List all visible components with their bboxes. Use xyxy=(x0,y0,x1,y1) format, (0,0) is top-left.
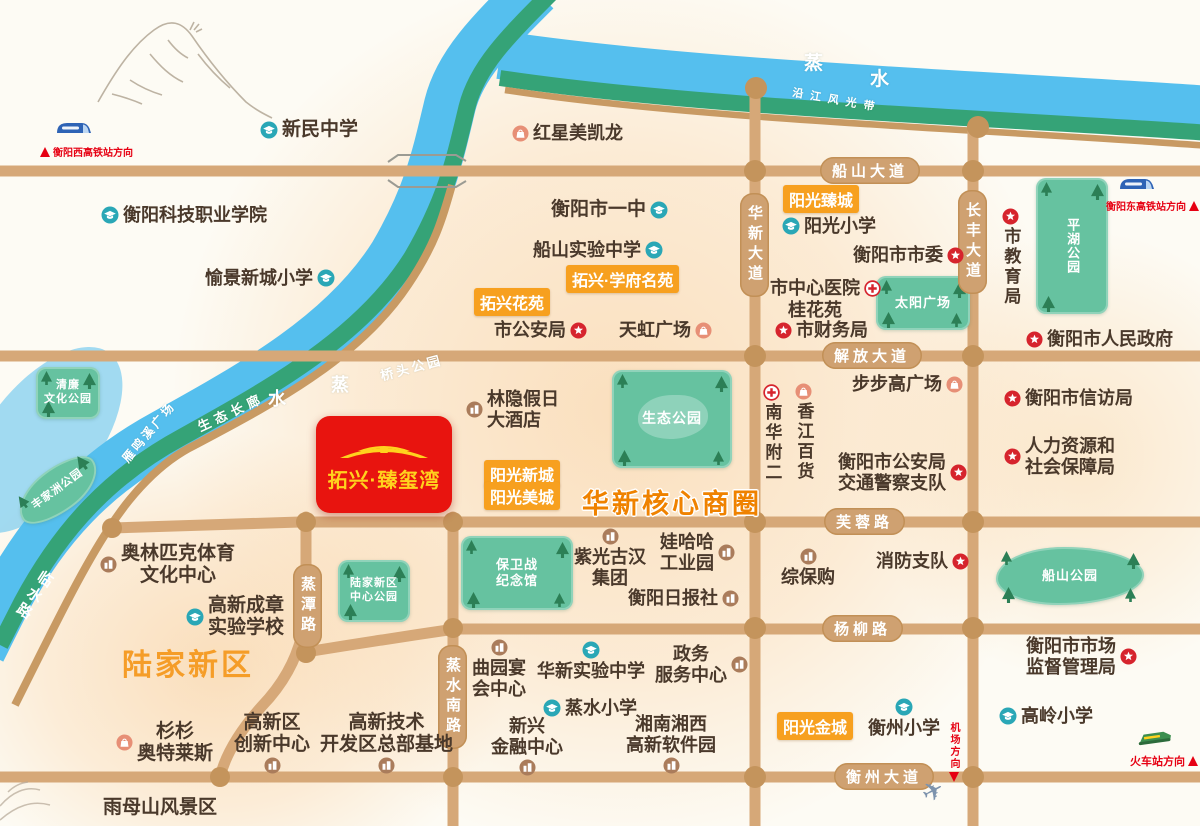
gov-icon xyxy=(1004,448,1021,465)
poi-text-line: 开发区总部基地 xyxy=(320,734,453,756)
poi-text-line: 衡阳科技职业学院 xyxy=(123,205,267,226)
poi-text: 船山实验中学 xyxy=(533,240,641,261)
poi-text: 政务服务中心 xyxy=(655,644,727,685)
project-badge: 阳光臻城 xyxy=(783,185,859,213)
poi-text-line: 船山实验中学 xyxy=(533,240,641,261)
poi-gov: 消防支队 xyxy=(876,551,969,572)
tree-icon xyxy=(466,540,477,554)
river-label: 雁鸣溪广场 xyxy=(118,398,179,466)
poi-text-line: 高岭小学 xyxy=(1021,706,1093,727)
poi-building: 新兴金融中心 xyxy=(491,716,563,776)
poi-text: 桂花苑 xyxy=(788,300,842,321)
poi-text: 市公安局 xyxy=(494,320,566,341)
gov-icon xyxy=(1120,648,1137,665)
poi-school: 衡阳市一中 xyxy=(551,199,668,221)
river-label: 水 xyxy=(268,385,286,411)
road-label: 解放大道 xyxy=(822,342,922,369)
poi-text: 湘南湘西高新软件园 xyxy=(626,714,716,755)
tree-icon xyxy=(1125,588,1136,602)
river-label: 沿江风光带 xyxy=(791,84,882,115)
tree-icon xyxy=(1002,587,1015,603)
park-name-line: 生态公园 xyxy=(642,410,702,428)
park-name-line: 保卫战 xyxy=(496,557,538,573)
poi-school: 衡阳科技职业学院 xyxy=(101,205,267,226)
poi-text: 衡阳市人民政府 xyxy=(1047,329,1173,350)
gov-icon xyxy=(1026,331,1043,348)
poi-text: 南华附二 xyxy=(762,403,781,483)
direction-marker: 衡阳西高铁站方向 xyxy=(40,144,133,159)
poi-text-line: 实验学校 xyxy=(208,617,284,639)
poi-text-line: 南华附二 xyxy=(762,403,781,483)
river-label: 生态长廊 xyxy=(194,388,267,436)
direction-text: 衡阳东高铁站方向 xyxy=(1106,198,1186,213)
tree-icon xyxy=(344,604,357,620)
poi-text: 综保购 xyxy=(781,567,835,588)
poi-text-line: 工业园 xyxy=(660,553,714,574)
poi-text: 新民中学 xyxy=(282,119,358,141)
train-green-icon xyxy=(1136,727,1174,746)
logo-roof-icon xyxy=(334,437,434,461)
building-icon xyxy=(519,759,536,776)
park-name-line: 中心公园 xyxy=(350,591,398,605)
poi-building: 高新区创新中心 xyxy=(234,712,310,774)
poi-text-line: 高新软件园 xyxy=(626,735,716,756)
road-label: 蒸潭路 xyxy=(293,564,322,648)
poi-text: 阳光小学 xyxy=(804,216,876,237)
poi-text-line: 衡阳市市场 xyxy=(1026,636,1116,657)
poi-text-line: 紫光古汉 xyxy=(574,547,646,568)
park-block: 陆家新区中心公园 xyxy=(338,560,410,622)
school-icon xyxy=(582,641,600,659)
park-name-line: 丰家洲公园 xyxy=(30,467,87,513)
park-name: 太阳广场 xyxy=(895,295,951,311)
tree-icon xyxy=(1091,184,1104,200)
poi-text: 市财务局 xyxy=(796,320,868,341)
poi-school: 新民中学 xyxy=(260,119,358,141)
road-label: 临水路 xyxy=(9,566,58,625)
tree-icon xyxy=(343,564,354,578)
park-name-line: 平湖公园 xyxy=(1064,218,1080,274)
poi-text: 愉景新城小学 xyxy=(205,268,313,289)
poi-text: 红星美凯龙 xyxy=(533,123,623,144)
poi-building: 综保购 xyxy=(781,548,835,588)
poi-text: 衡阳市市委 xyxy=(853,245,943,266)
poi-text-line: 政务 xyxy=(655,644,727,665)
poi-hospital: 市中心医院 xyxy=(770,278,881,299)
poi-text: 奥林匹克体育文化中心 xyxy=(121,543,235,586)
mall-icon xyxy=(695,322,712,339)
poi-text-line: 综保购 xyxy=(781,567,835,588)
poi-text-line: 衡州小学 xyxy=(868,718,940,739)
poi-building: 奥林匹克体育文化中心 xyxy=(100,543,235,586)
park-name: 生态公园 xyxy=(642,410,702,428)
river-label: 桥头公园 xyxy=(378,349,445,384)
poi-text-line: 市教育局 xyxy=(1001,227,1020,307)
poi-building: 政务服务中心 xyxy=(655,644,748,685)
poi-school: 高新成章实验学校 xyxy=(186,595,284,638)
poi-text-line: 奥特莱斯 xyxy=(137,743,213,765)
poi-gov: 人力资源和社会保障局 xyxy=(1004,436,1115,477)
direction-text: 火车站方向 xyxy=(1130,753,1185,769)
hospital-icon xyxy=(864,280,881,297)
school-icon xyxy=(999,707,1017,725)
poi-text-line: 红星美凯龙 xyxy=(533,123,623,144)
gov-icon xyxy=(1002,208,1019,225)
poi-building: 紫光古汉集团 xyxy=(574,528,646,588)
poi-text-line: 人力资源和 xyxy=(1025,436,1115,457)
direction-arrow-icon xyxy=(40,147,50,157)
poi-gov: 衡阳市市委 xyxy=(853,245,964,266)
tree-icon xyxy=(951,313,962,327)
direction-arrow-icon xyxy=(1189,201,1199,211)
area-name: 华新核心商圈 xyxy=(582,482,762,521)
gov-icon xyxy=(1004,390,1021,407)
park-block: 保卫战纪念馆 xyxy=(461,536,573,610)
poi-text-line: 曲园宴 xyxy=(472,658,526,679)
poi-building: 衡阳日报社 xyxy=(628,588,739,609)
school-icon xyxy=(260,121,278,139)
gov-icon xyxy=(952,553,969,570)
project-badge: 拓兴花苑 xyxy=(474,288,550,316)
poi-text-line: 文化中心 xyxy=(121,565,235,587)
tree-icon xyxy=(618,450,631,466)
poi-building: 娃哈哈工业园 xyxy=(660,532,735,573)
road-label: 华新大道 xyxy=(740,193,769,297)
poi-text-line: 高新区 xyxy=(234,712,310,734)
poi-text: 衡阳市公安局交通警察支队 xyxy=(838,452,946,493)
poi-text-line: 服务中心 xyxy=(655,665,727,686)
direction-marker: 机场方向 xyxy=(946,722,961,782)
poi-text: 杉杉奥特莱斯 xyxy=(137,721,213,764)
building-icon xyxy=(378,757,395,774)
park-name: 陆家新区中心公园 xyxy=(350,577,398,605)
project-logo-name: 拓兴·臻玺湾 xyxy=(328,464,441,493)
poi-text: 香江百货 xyxy=(794,402,813,482)
park-name: 平湖公园 xyxy=(1064,218,1080,274)
poi-text-line: 桂花苑 xyxy=(788,300,842,321)
school-icon xyxy=(543,699,561,717)
poi-text: 雨母山风景区 xyxy=(103,797,217,819)
poi-text-line: 监督管理局 xyxy=(1026,657,1116,678)
poi-text: 市教育局 xyxy=(1001,227,1020,307)
direction-marker: 火车站方向 xyxy=(1130,753,1198,769)
building-icon xyxy=(491,639,508,656)
poi-text-line: 雨母山风景区 xyxy=(103,797,217,819)
poi-text: 高新成章实验学校 xyxy=(208,595,284,638)
poi-gov: 市公安局 xyxy=(494,320,587,341)
poi-text: 衡阳科技职业学院 xyxy=(123,205,267,226)
school-icon xyxy=(101,206,119,224)
poi-text-line: 华新实验中学 xyxy=(537,661,645,682)
gov-icon xyxy=(570,322,587,339)
poi-building: 林隐假日大酒店 xyxy=(466,389,559,430)
direction-text: 机场方向 xyxy=(946,722,961,770)
poi-mall: 红星美凯龙 xyxy=(512,123,623,144)
park-name-line: 船山公园 xyxy=(1042,568,1098,584)
tree-icon xyxy=(713,451,724,465)
park-block: 丰家洲公园 xyxy=(8,445,108,535)
building-icon xyxy=(663,757,680,774)
poi-gov: 市教育局 xyxy=(1001,208,1020,307)
poi-text-line: 创新中心 xyxy=(234,734,310,756)
train-blue-icon xyxy=(55,119,93,136)
poi-text-line: 衡阳市信访局 xyxy=(1025,388,1133,409)
poi-text: 紫光古汉集团 xyxy=(574,547,646,588)
poi-text: 新兴金融中心 xyxy=(491,716,563,757)
park-name: 丰家洲公园 xyxy=(30,467,87,513)
tree-icon xyxy=(1127,553,1140,569)
poi-text-line: 金融中心 xyxy=(491,737,563,758)
poi-text: 高新区创新中心 xyxy=(234,712,310,755)
poi-text: 人力资源和社会保障局 xyxy=(1025,436,1115,477)
poi-text-line: 社会保障局 xyxy=(1025,457,1115,478)
poi-text-line: 会中心 xyxy=(472,679,526,700)
project-badge: 拓兴·学府名苑 xyxy=(566,265,679,293)
park-block: 清廉文化公园 xyxy=(36,367,100,419)
poi-mall: 步步高广场 xyxy=(852,374,963,395)
direction-arrow-icon xyxy=(949,772,959,782)
poi-gov: 市财务局 xyxy=(775,320,868,341)
mall-icon xyxy=(512,125,529,142)
poi-text: 衡阳市一中 xyxy=(551,199,646,221)
road-label: 船山大道 xyxy=(820,157,920,184)
mall-icon xyxy=(795,383,812,400)
direction-text: 衡阳西高铁站方向 xyxy=(53,144,133,159)
poi-text: 衡州小学 xyxy=(868,718,940,739)
poi-text-line: 娃哈哈 xyxy=(660,532,714,553)
park-block: 生态公园 xyxy=(612,370,732,468)
poi-text-line: 衡阳日报社 xyxy=(628,588,718,609)
poi-text-line: 步步高广场 xyxy=(852,374,942,395)
poi-text-line: 新民中学 xyxy=(282,119,358,141)
tree-icon xyxy=(1042,296,1055,312)
poi-text-line: 高新成章 xyxy=(208,595,284,617)
school-icon xyxy=(645,241,663,259)
poi-text: 林隐假日大酒店 xyxy=(487,389,559,430)
park-block: 太阳广场 xyxy=(876,276,970,330)
park-name-line: 太阳广场 xyxy=(895,295,951,311)
school-icon xyxy=(895,698,913,716)
park-name-line: 文化公园 xyxy=(44,393,92,407)
poi-text: 消防支队 xyxy=(876,551,948,572)
poi-mall: 天虹广场 xyxy=(619,320,712,341)
tree-icon xyxy=(617,374,628,388)
building-icon xyxy=(264,757,281,774)
river-label: 蒸 xyxy=(804,48,823,75)
tree-icon xyxy=(715,376,728,392)
poi-text-line: 香江百货 xyxy=(794,402,813,482)
mall-icon xyxy=(116,734,133,751)
park-block: 平湖公园 xyxy=(1036,178,1108,314)
train-blue-icon xyxy=(1118,175,1156,192)
poi-building: 湘南湘西高新软件园 xyxy=(626,714,716,774)
poi-text-line: 衡阳市市委 xyxy=(853,245,943,266)
poi-text-line: 高新技术 xyxy=(320,712,453,734)
poi-building: 高新技术开发区总部基地 xyxy=(320,712,453,774)
poi-text: 华新实验中学 xyxy=(537,661,645,682)
poi-text: 市中心医院 xyxy=(770,278,860,299)
poi-text-line: 阳光小学 xyxy=(804,216,876,237)
poi-text-line: 天虹广场 xyxy=(619,320,691,341)
tree-icon xyxy=(467,592,480,608)
school-icon xyxy=(650,201,668,219)
poi-text: 衡阳市市场监督管理局 xyxy=(1026,636,1116,677)
park-name: 清廉文化公园 xyxy=(44,379,92,407)
poi-school: 华新实验中学 xyxy=(537,641,645,682)
poi-text-line: 交通警察支队 xyxy=(838,473,946,494)
plane-icon: ✈ xyxy=(917,774,948,807)
poi-label: 雨母山风景区 xyxy=(103,797,217,819)
poi-text-line: 新兴 xyxy=(491,716,563,737)
poi-text: 天虹广场 xyxy=(619,320,691,341)
poi-text-line: 市财务局 xyxy=(796,320,868,341)
building-icon xyxy=(718,544,735,561)
poi-school: 高岭小学 xyxy=(999,706,1093,727)
poi-gov: 衡阳市人民政府 xyxy=(1026,329,1173,350)
poi-text: 曲园宴会中心 xyxy=(472,658,526,699)
park-name-line: 清廉 xyxy=(44,379,92,393)
poi-text-line: 集团 xyxy=(574,568,646,589)
poi-school: 船山实验中学 xyxy=(533,240,663,261)
poi-school: 愉景新城小学 xyxy=(205,268,335,289)
tree-icon xyxy=(1041,182,1052,196)
area-name: 陆家新区 xyxy=(122,640,254,684)
gov-icon xyxy=(775,322,792,339)
building-icon xyxy=(731,656,748,673)
hospital-icon xyxy=(763,384,780,401)
building-icon xyxy=(602,528,619,545)
poi-text: 步步高广场 xyxy=(852,374,942,395)
project-badge: 阳光美城 xyxy=(484,482,560,510)
poi-mall: 香江百货 xyxy=(794,383,813,482)
tree-icon xyxy=(881,280,892,294)
poi-text: 娃哈哈工业园 xyxy=(660,532,714,573)
poi-text: 高岭小学 xyxy=(1021,706,1093,727)
label-layer: 清廉文化公园平湖公园太阳广场生态公园陆家新区中心公园保卫战纪念馆船山公园丰家洲公… xyxy=(0,0,1200,826)
location-map: 清廉文化公园平湖公园太阳广场生态公园陆家新区中心公园保卫战纪念馆船山公园丰家洲公… xyxy=(0,0,1200,826)
building-icon xyxy=(466,401,483,418)
road-label: 杨柳路 xyxy=(822,615,903,642)
poi-text: 衡阳日报社 xyxy=(628,588,718,609)
poi-text-line: 衡阳市公安局 xyxy=(838,452,946,473)
school-icon xyxy=(317,269,335,287)
poi-text-line: 杉杉 xyxy=(137,721,213,743)
mall-icon xyxy=(946,376,963,393)
river-label: 蒸 xyxy=(331,371,349,397)
road-label: 长丰大道 xyxy=(958,190,987,294)
tree-icon xyxy=(1001,551,1012,565)
poi-school: 阳光小学 xyxy=(782,216,876,237)
park-name-line: 纪念馆 xyxy=(496,573,538,589)
poi-text-line: 市公安局 xyxy=(494,320,566,341)
building-icon xyxy=(722,590,739,607)
school-icon xyxy=(186,608,204,626)
direction-marker: 衡阳东高铁站方向 xyxy=(1106,198,1199,213)
poi-gov: 衡阳市公安局交通警察支队 xyxy=(838,452,967,493)
poi-text: 衡阳市信访局 xyxy=(1025,388,1133,409)
tree-icon xyxy=(556,542,569,558)
poi-hospital: 南华附二 xyxy=(762,384,781,483)
poi-gov: 衡阳市信访局 xyxy=(1004,388,1133,409)
poi-text-line: 奥林匹克体育 xyxy=(121,543,235,565)
poi-building: 曲园宴会中心 xyxy=(472,639,526,699)
river-label: 水 xyxy=(870,64,889,91)
poi-gov: 衡阳市市场监督管理局 xyxy=(1026,636,1137,677)
park-name: 保卫战纪念馆 xyxy=(496,557,538,590)
park-name: 船山公园 xyxy=(1042,568,1098,584)
poi-text-line: 大酒店 xyxy=(487,410,559,431)
poi-text-line: 衡阳市人民政府 xyxy=(1047,329,1173,350)
school-icon xyxy=(782,217,800,235)
poi-text-line: 衡阳市一中 xyxy=(551,199,646,221)
poi-text-line: 愉景新城小学 xyxy=(205,268,313,289)
building-icon xyxy=(100,556,117,573)
direction-arrow-icon xyxy=(1188,756,1198,766)
gov-icon xyxy=(947,247,964,264)
building-icon xyxy=(800,548,817,565)
poi-text: 高新技术开发区总部基地 xyxy=(320,712,453,755)
park-name-line: 陆家新区 xyxy=(350,577,398,591)
poi-school: 衡州小学 xyxy=(868,698,940,739)
tree-icon xyxy=(882,312,895,328)
poi-text-line: 林隐假日 xyxy=(487,389,559,410)
project-badge: 阳光金城 xyxy=(777,712,853,740)
gov-icon xyxy=(950,464,967,481)
poi-text-line: 市中心医院 xyxy=(770,278,860,299)
poi-text-line: 湘南湘西 xyxy=(626,714,716,735)
tree-icon xyxy=(554,593,565,607)
poi-label: 桂花苑 xyxy=(788,300,842,321)
park-block: 船山公园 xyxy=(996,547,1144,605)
road-label: 芙蓉路 xyxy=(824,508,905,535)
poi-text-line: 消防支队 xyxy=(876,551,948,572)
project-logo: 拓兴·臻玺湾 xyxy=(316,416,452,513)
poi-mall: 杉杉奥特莱斯 xyxy=(116,721,213,764)
